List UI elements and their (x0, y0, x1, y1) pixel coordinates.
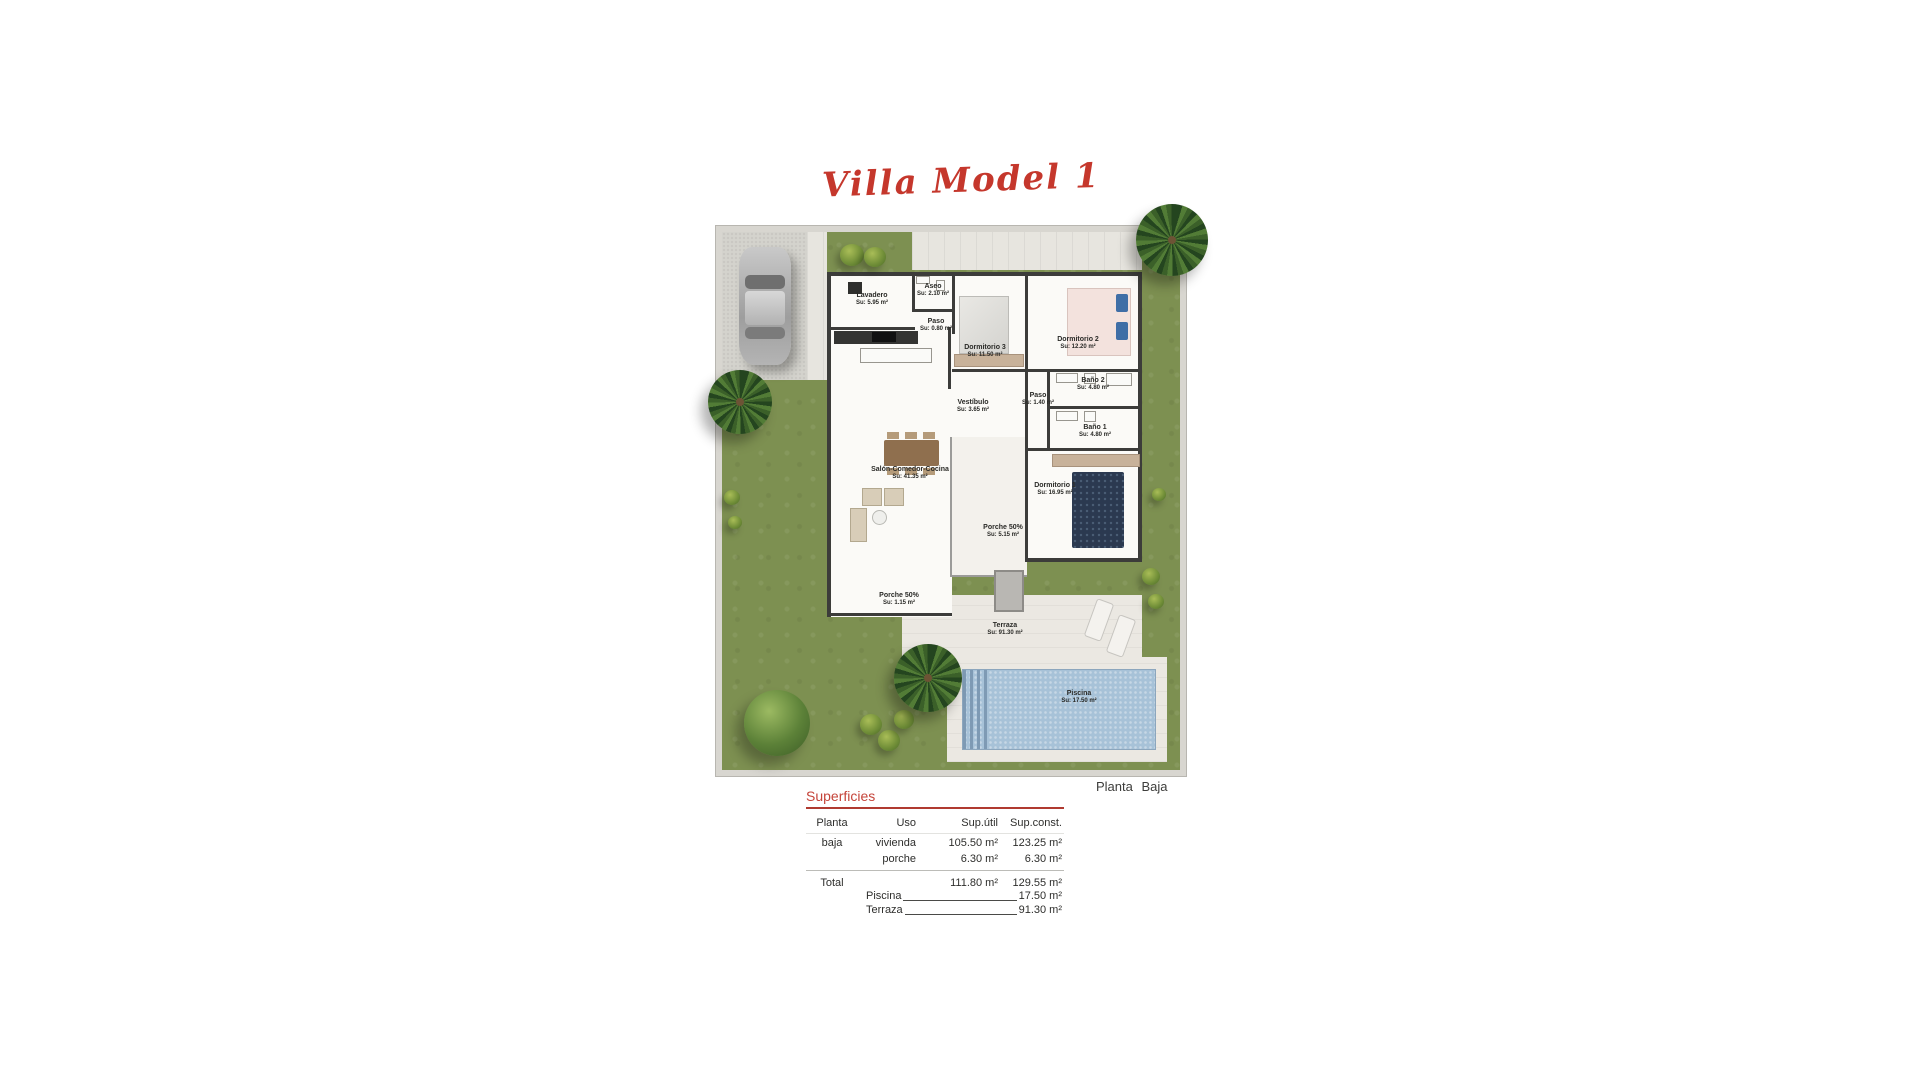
bush (1148, 594, 1164, 609)
room-label-bano-2: Baño 2 Su: 4.80 m² (1051, 377, 1135, 392)
pillow (1116, 294, 1128, 312)
wall (1138, 272, 1142, 562)
chair (923, 432, 935, 439)
cell: porche (858, 850, 922, 866)
wall (1025, 272, 1028, 562)
side-table (872, 510, 887, 525)
cell: vivienda (858, 834, 922, 850)
room-label-terraza: Terraza Su: 91.30 m² (963, 622, 1047, 637)
superficies-table: Superficies Planta Uso Sup.útil Sup.cons… (806, 788, 1064, 891)
wall (827, 613, 952, 616)
bath1-toilet (1084, 411, 1096, 422)
wall (1027, 558, 1142, 562)
extra-row-piscina: Piscina 17.50 m² (866, 888, 1062, 902)
cell: 6.30 m² (1000, 850, 1064, 866)
cell (806, 850, 858, 866)
cell: 105.50 m² (922, 834, 1000, 850)
kitchen-island (860, 348, 932, 363)
col-header-sup-const: Sup.const. (1000, 809, 1064, 834)
site-plan: Lavadero Su: 5.95 m² Aseo Su: 2.10 m² Pa… (716, 226, 1186, 776)
extra-row-terraza: Terraza 91.30 m² (866, 902, 1062, 916)
swimming-pool (962, 669, 1156, 750)
leader-line (905, 914, 1017, 915)
glass-wall (950, 437, 952, 577)
cooktop (872, 332, 896, 342)
car-top-view (739, 247, 791, 365)
leader-line (903, 900, 1016, 901)
col-header-sup-util: Sup.útil (922, 809, 1000, 834)
car-roof (745, 291, 785, 325)
room-label-dormitorio-1: Dormitorio 1 Su: 16.95 m² (1013, 482, 1097, 497)
bush (894, 710, 914, 729)
chaise (850, 508, 867, 542)
cell: 6.30 m² (922, 850, 1000, 866)
chair (905, 432, 917, 439)
room-label-porche-1: Porche 50% Su: 5.15 m² (961, 524, 1045, 539)
extra-value: 91.30 m² (1019, 904, 1062, 916)
dining-table (884, 440, 939, 466)
armchair (862, 488, 882, 506)
west-walkway (807, 232, 827, 380)
extra-label: Terraza (866, 904, 903, 916)
palm-tree (708, 370, 772, 434)
room-label-piscina: Piscina Su: 17.50 m² (1037, 690, 1121, 705)
room-label-vestibulo: Vestíbulo Su: 3.65 m² (931, 399, 1015, 414)
extra-surfaces: Piscina 17.50 m² Terraza 91.30 m² (866, 888, 1062, 916)
wall (912, 309, 955, 312)
wall (827, 272, 831, 617)
bush (728, 516, 742, 529)
car-windshield (745, 275, 785, 289)
bush (860, 714, 882, 735)
bush (724, 490, 740, 505)
terrace-table-set (994, 570, 1024, 612)
bush (878, 730, 900, 751)
bush (1142, 568, 1160, 585)
superficies-grid: Planta Uso Sup.útil Sup.const. baja vivi… (806, 809, 1064, 891)
bush (840, 244, 864, 266)
col-header-uso: Uso (858, 809, 922, 834)
room-label-dormitorio-3: Dormitorio 3 Su: 11.50 m² (943, 344, 1027, 359)
cell: 123.25 m² (1000, 834, 1064, 850)
villa-plan-page: Villa Model 1 (0, 0, 1920, 1080)
porch-floor (952, 437, 1027, 577)
extra-value: 17.50 m² (1019, 890, 1062, 902)
bush (1152, 488, 1166, 501)
car-rear-window (745, 327, 785, 339)
chair (887, 432, 899, 439)
total-label: Total (806, 871, 858, 891)
wall (1047, 369, 1050, 451)
superficies-title: Superficies (806, 788, 1064, 804)
room-label-dormitorio-2: Dormitorio 2 Su: 12.20 m² (1036, 336, 1120, 351)
wall (1028, 448, 1142, 451)
palm-tree (894, 644, 962, 712)
plan-caption: Planta Baja (1096, 779, 1216, 794)
entry-patio (912, 232, 1142, 270)
room-label-aseo: Aseo Su: 2.10 m² (891, 283, 975, 298)
page-title: Villa Model 1 (821, 154, 1142, 205)
armchair (884, 488, 904, 506)
room-label-porche-2: Porche 50% Su: 1.15 m² (857, 592, 941, 607)
bath1-sink (1056, 411, 1078, 421)
round-tree (744, 690, 810, 756)
closet-dormitorio-1 (1052, 454, 1140, 467)
room-label-salon-comedor-cocina: Salón-Comedor-Cocina Su: 41.35 m² (868, 466, 952, 481)
extra-label: Piscina (866, 890, 901, 902)
col-header-planta: Planta (806, 809, 858, 834)
pool-steps (963, 670, 987, 749)
wall (827, 272, 1142, 276)
palm-tree (1136, 204, 1208, 276)
bush (864, 247, 886, 267)
room-label-paso: Paso Su: 0.80 m² (894, 318, 978, 333)
driveway (722, 232, 807, 380)
room-label-bano-1: Baño 1 Su: 4.80 m² (1053, 424, 1137, 439)
cell: baja (806, 834, 858, 850)
